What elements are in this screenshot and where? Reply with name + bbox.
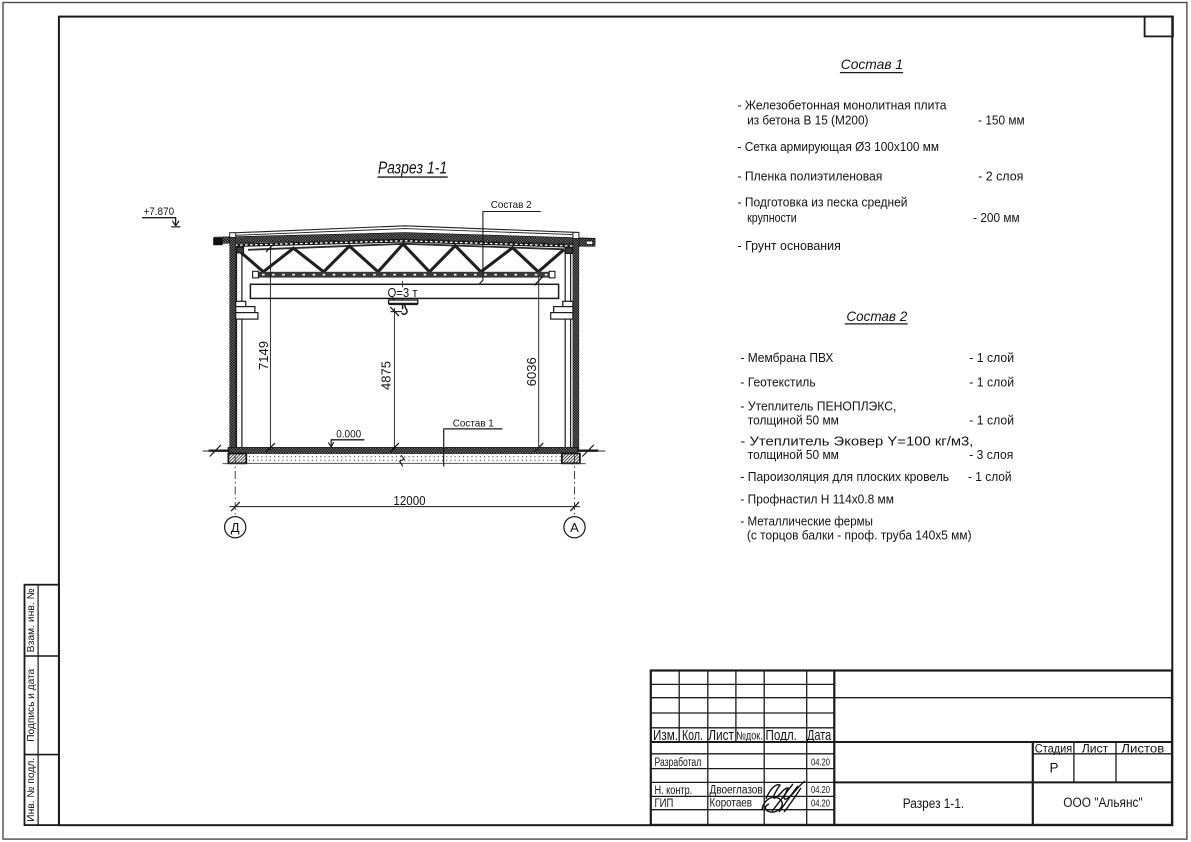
svg-text:Листов: Листов bbox=[1121, 741, 1164, 755]
svg-text:(с торцов балки - проф. труба: (с торцов балки - проф. труба 140х5 мм) bbox=[747, 528, 972, 543]
svg-text:Р: Р bbox=[1049, 761, 1058, 776]
svg-text:Инв. № подл.: Инв. № подл. bbox=[26, 758, 37, 822]
svg-text:А: А bbox=[570, 520, 579, 535]
svg-text:ГИП: ГИП bbox=[655, 798, 674, 810]
svg-text:Состав 1: Состав 1 bbox=[841, 56, 903, 72]
svg-text:- Профнастил Н 114х0.8 мм: - Профнастил Н 114х0.8 мм bbox=[740, 491, 894, 506]
svg-text:Коротаев: Коротаев bbox=[710, 798, 753, 810]
svg-text:- Металлические фермы: - Металлические фермы bbox=[740, 514, 873, 529]
svg-text:Изм.: Изм. bbox=[653, 727, 678, 744]
svg-text:- Подготовка из песка средней: - Подготовка из песка средней bbox=[738, 194, 908, 209]
svg-text:Кол.: Кол. bbox=[682, 727, 703, 744]
svg-text:Состав 2: Состав 2 bbox=[846, 308, 907, 324]
svg-text:7149: 7149 bbox=[257, 341, 271, 370]
svg-text:- 150 мм: - 150 мм bbox=[978, 112, 1025, 127]
svg-text:- Сетка армирующая Ø3 100х100: - Сетка армирующая Ø3 100х100 мм bbox=[738, 139, 940, 154]
svg-text:Разработал: Разработал bbox=[655, 757, 702, 769]
svg-text:Разрез 1-1.: Разрез 1-1. bbox=[903, 796, 964, 811]
svg-text:крупности: крупности bbox=[747, 210, 797, 225]
svg-text:Дата: Дата bbox=[807, 727, 832, 744]
svg-text:ООО "Альянс": ООО "Альянс" bbox=[1063, 795, 1143, 810]
svg-text:№док.: №док. bbox=[736, 731, 763, 743]
svg-text:Взам. инв. №: Взам. инв. № bbox=[26, 588, 37, 652]
svg-text:Подпись и дата: Подпись и дата bbox=[26, 668, 37, 741]
svg-text:+7.870: +7.870 bbox=[144, 206, 175, 218]
svg-text:толщиной 50 мм: толщиной 50 мм bbox=[748, 447, 839, 462]
svg-text:Лист: Лист bbox=[1082, 741, 1109, 755]
svg-text:- 1 слой: - 1 слой bbox=[968, 469, 1012, 484]
svg-text:- 200 мм: - 200 мм bbox=[973, 210, 1020, 225]
svg-text:- 1 слой: - 1 слой bbox=[969, 412, 1014, 427]
svg-text:Состав 2: Состав 2 bbox=[491, 200, 532, 211]
svg-text:12000: 12000 bbox=[393, 494, 425, 508]
svg-text:Лист: Лист bbox=[708, 727, 734, 744]
svg-text:- Грунт основания: - Грунт основания bbox=[738, 238, 841, 253]
svg-text:Состав 1: Состав 1 bbox=[453, 419, 494, 430]
svg-text:- Пленка полиэтиленовая: - Пленка полиэтиленовая bbox=[738, 168, 883, 183]
svg-text:- 3 слоя: - 3 слоя bbox=[969, 447, 1013, 462]
svg-text:- Пароизоляция для плоских кро: - Пароизоляция для плоских кровель bbox=[740, 469, 949, 484]
svg-text:04.20: 04.20 bbox=[811, 798, 830, 809]
svg-text:- Железобетонная монолитная п: - Железобетонная монолитная плита bbox=[738, 98, 948, 113]
svg-text:Н. контр.: Н. контр. bbox=[655, 785, 693, 797]
svg-text:- 1 слой: - 1 слой bbox=[969, 350, 1014, 365]
svg-text:Стадия: Стадия bbox=[1035, 741, 1072, 755]
svg-text:4875: 4875 bbox=[379, 361, 393, 390]
svg-text:- 1 слой: - 1 слой bbox=[969, 374, 1014, 389]
svg-text:из бетона В 15 (М200): из бетона В 15 (М200) bbox=[747, 112, 868, 127]
svg-text:- Утеплитель ПЕНОПЛЭКС,: - Утеплитель ПЕНОПЛЭКС, bbox=[740, 399, 896, 414]
svg-text:толщиной 50 мм: толщиной 50 мм bbox=[748, 412, 839, 427]
svg-text:0.000: 0.000 bbox=[336, 429, 361, 441]
svg-text:Подл.: Подл. bbox=[766, 727, 797, 744]
svg-text:04.20: 04.20 bbox=[811, 785, 830, 796]
svg-text:6036: 6036 bbox=[525, 357, 539, 386]
svg-text:- Геотекстиль: - Геотекстиль bbox=[740, 374, 815, 389]
svg-text:04.20: 04.20 bbox=[811, 758, 830, 769]
svg-text:- Мембрана ПВХ: - Мембрана ПВХ bbox=[740, 350, 833, 365]
svg-text:- 2 слоя: - 2 слоя bbox=[978, 168, 1023, 183]
svg-text:Двоеглазов: Двоеглазов bbox=[710, 785, 763, 797]
svg-text:Разрез 1-1: Разрез 1-1 bbox=[378, 157, 447, 177]
svg-text:Д: Д bbox=[231, 520, 240, 535]
